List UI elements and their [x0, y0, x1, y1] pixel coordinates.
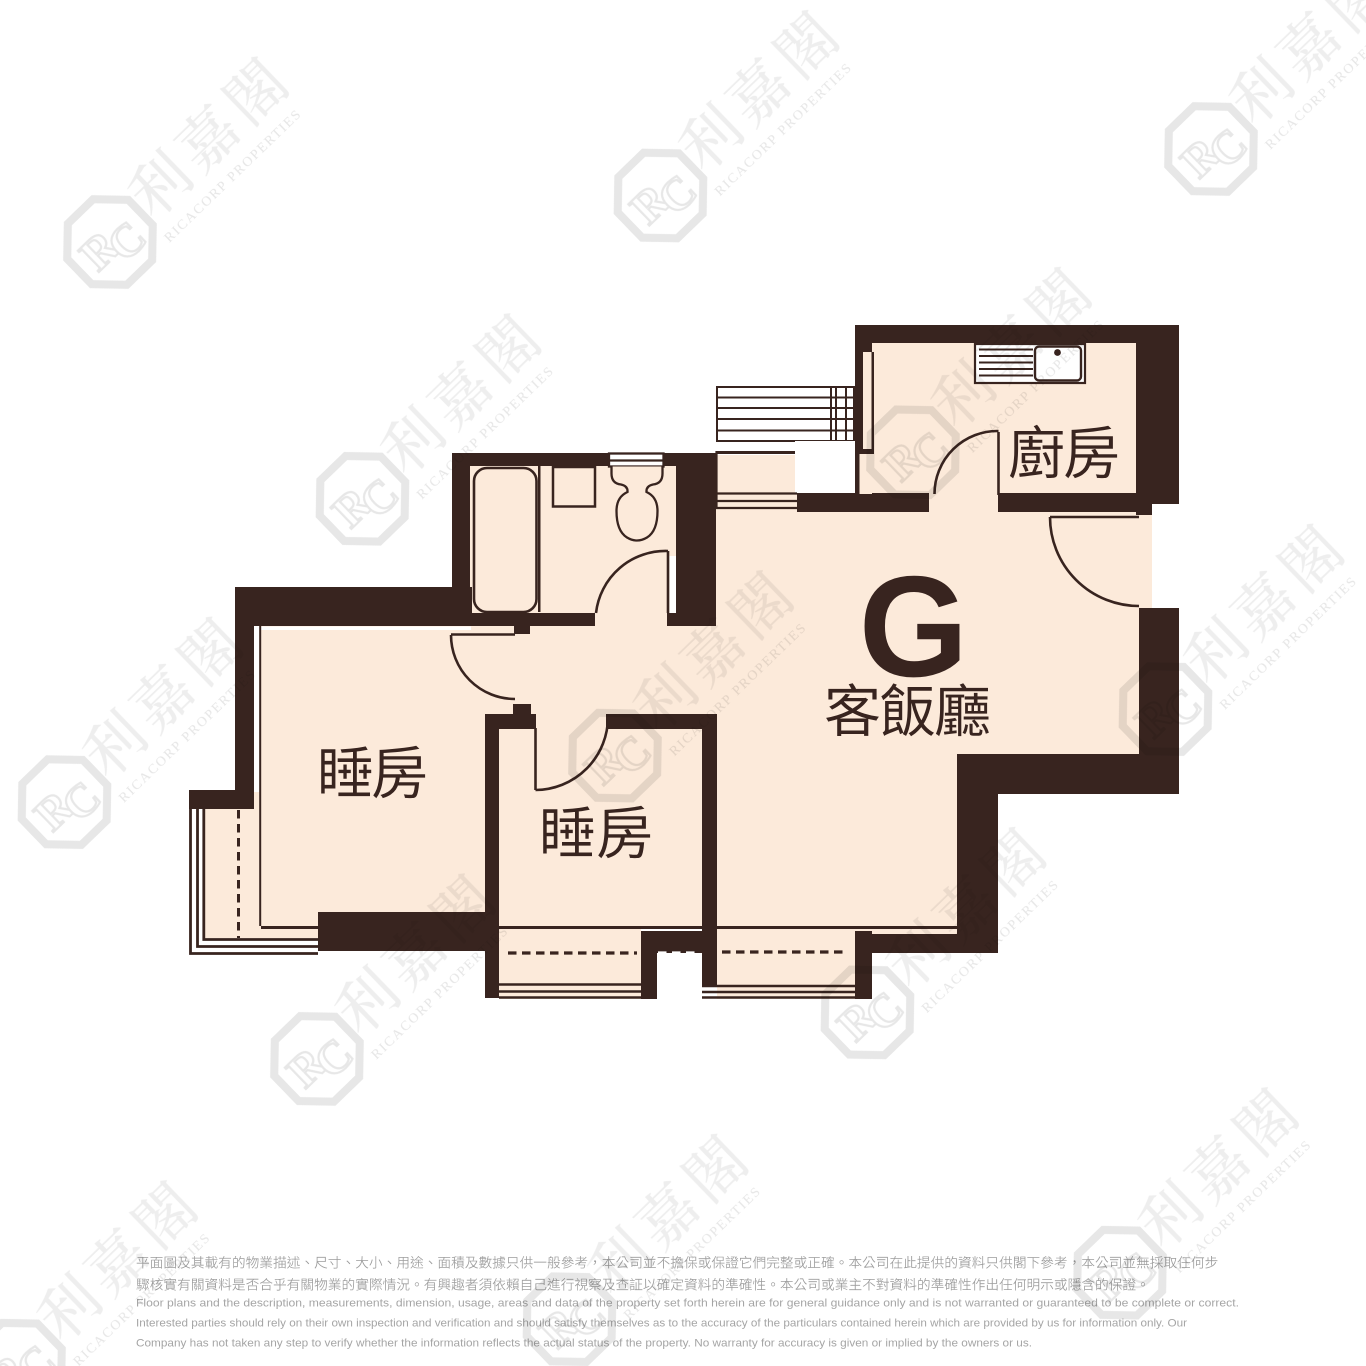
svg-text:Interested parties should rely: Interested parties should rely on their …	[136, 1318, 1187, 1330]
svg-text:G: G	[859, 547, 968, 708]
svg-text:Floor plans and the descriptio: Floor plans and the description, measure…	[136, 1298, 1239, 1310]
